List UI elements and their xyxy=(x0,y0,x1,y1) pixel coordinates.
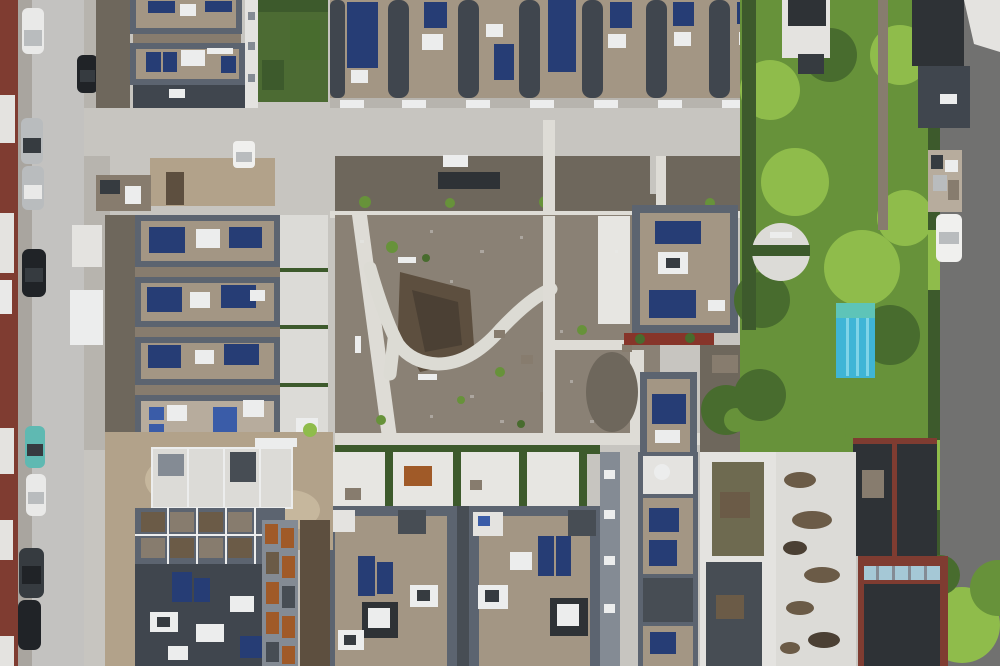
roof-gap xyxy=(133,34,241,43)
roof-gap xyxy=(135,385,280,395)
window-panel xyxy=(282,586,295,608)
dark-roof-strip xyxy=(646,0,667,98)
skylight xyxy=(708,300,725,311)
roof-gap xyxy=(135,327,280,337)
wood-panel xyxy=(265,524,278,544)
terrace-divider xyxy=(280,268,328,272)
dormer xyxy=(658,100,682,109)
hvac-fan xyxy=(666,258,680,268)
garden-path xyxy=(878,0,888,230)
tree xyxy=(761,148,829,216)
dark-roof-strip xyxy=(519,0,540,98)
junk xyxy=(948,180,959,200)
solar-array xyxy=(163,52,177,72)
pallet xyxy=(443,155,468,167)
roof-stain xyxy=(720,492,750,518)
roof-gap xyxy=(135,267,280,277)
junk xyxy=(945,160,958,172)
roof-stain xyxy=(804,567,840,583)
roof-terrace xyxy=(527,452,579,506)
shrub xyxy=(386,241,398,253)
roof-hatch xyxy=(608,34,626,48)
dormer xyxy=(340,100,364,109)
junk xyxy=(931,155,943,169)
car-windshield xyxy=(28,492,44,504)
roof-hatch xyxy=(181,50,205,66)
roof-stain xyxy=(786,601,814,615)
car-roof-rails xyxy=(22,566,41,584)
wood-panel xyxy=(282,556,295,578)
pool-cover xyxy=(836,303,875,318)
shrub xyxy=(359,196,371,208)
facade-white-segment xyxy=(0,636,14,666)
roof-hatch xyxy=(351,70,368,83)
solar-array xyxy=(556,536,571,576)
skylight-mullion xyxy=(892,566,895,580)
window-panel xyxy=(266,642,279,662)
terrace-hedge xyxy=(385,452,393,506)
solar-array xyxy=(148,1,175,13)
window xyxy=(248,42,255,50)
skylight xyxy=(243,400,264,417)
rowhouse-block xyxy=(330,0,792,122)
dark-roof-strip xyxy=(330,0,345,98)
corner-skylight xyxy=(568,510,596,536)
grid-cell xyxy=(199,512,223,532)
tree xyxy=(790,404,846,460)
walkway xyxy=(84,108,794,156)
paver xyxy=(521,355,533,364)
terrace-divider xyxy=(280,383,328,387)
car-roof xyxy=(24,185,42,199)
shrub-bed xyxy=(262,60,284,90)
yard-decking xyxy=(712,355,738,373)
solar-array xyxy=(221,56,236,73)
shrub xyxy=(445,198,455,208)
narrow-alley xyxy=(620,452,638,666)
cross-path xyxy=(543,120,555,216)
solar-array xyxy=(224,344,259,365)
construction-shed xyxy=(72,225,102,267)
junk-sheet xyxy=(125,186,141,204)
solar-array xyxy=(649,290,696,318)
garage-brick-edge xyxy=(892,438,897,556)
shed-annex xyxy=(798,54,824,74)
shrub xyxy=(577,325,587,335)
car-windshield xyxy=(24,30,42,46)
garage-clutter xyxy=(862,470,884,498)
outbuilding-roof xyxy=(912,0,964,66)
dark-roof-strip xyxy=(388,0,409,98)
roof-terrace xyxy=(461,452,519,506)
window xyxy=(604,556,615,565)
parked-car xyxy=(18,600,41,650)
solar-array xyxy=(655,221,701,244)
pool-lane-line xyxy=(866,318,869,376)
roof-hatch xyxy=(674,32,691,46)
shrub xyxy=(422,254,430,262)
solar-array xyxy=(649,508,679,532)
roof-vent xyxy=(940,94,957,104)
tree xyxy=(824,230,900,306)
terrace-hedge xyxy=(519,452,527,506)
solar-array xyxy=(649,540,677,566)
dark-roof-strip xyxy=(458,0,479,98)
terrace-hedge xyxy=(579,452,587,506)
solar-array xyxy=(194,578,210,602)
roof-stain xyxy=(783,541,807,555)
roof-stain xyxy=(784,472,816,488)
skylight-mullion xyxy=(924,566,927,580)
solar-panel xyxy=(149,407,164,420)
wood-panel xyxy=(266,582,279,604)
dormer xyxy=(466,100,490,109)
grid-cell xyxy=(141,512,165,532)
solar-array xyxy=(650,632,676,654)
window-panel xyxy=(266,552,279,574)
wood-panel xyxy=(266,612,279,634)
aerial-photo-canvas xyxy=(0,0,1000,666)
hvac-fan xyxy=(417,590,430,601)
wood-panel xyxy=(281,528,294,548)
solar-array xyxy=(240,636,262,658)
right-gardens xyxy=(734,0,938,460)
roof-vent-dome xyxy=(654,464,670,480)
shrub xyxy=(495,367,505,377)
dark-roof-strip xyxy=(709,0,730,98)
solar-array xyxy=(548,0,576,72)
roof-stain xyxy=(716,595,744,619)
dormer xyxy=(530,100,554,109)
planter-shrub xyxy=(685,333,695,343)
tank-bench xyxy=(770,232,792,238)
terrace-divider xyxy=(280,325,328,329)
skylight-mullion xyxy=(876,566,879,580)
southeast-buildings xyxy=(638,438,948,666)
terrace-unit xyxy=(470,480,482,490)
solar-array xyxy=(673,2,694,26)
shed-roof xyxy=(788,0,826,26)
shrub xyxy=(457,396,465,404)
top-left-buildings xyxy=(130,0,328,108)
construction-shed xyxy=(70,290,103,345)
grid-cell xyxy=(170,538,194,558)
cobblestone-spur xyxy=(390,340,394,374)
skylight xyxy=(196,229,220,248)
tower-glass-section xyxy=(643,578,693,622)
terrace-hedge xyxy=(453,452,461,506)
courtyard-path-branch xyxy=(555,340,631,350)
grid-cell xyxy=(228,538,252,558)
paver xyxy=(494,330,505,338)
window xyxy=(604,510,615,519)
verge-gravel-strip xyxy=(96,0,130,110)
shrub xyxy=(517,420,525,428)
hvac-unit xyxy=(655,430,680,443)
car-windshield xyxy=(27,444,43,456)
paver xyxy=(622,344,632,352)
car-windshield xyxy=(23,138,41,153)
solar-array xyxy=(347,2,378,68)
grid-cell xyxy=(199,538,223,558)
building-gap xyxy=(457,506,469,666)
wood-panel xyxy=(282,646,295,664)
wood-panel xyxy=(282,616,295,638)
window xyxy=(604,470,615,479)
bench xyxy=(355,336,361,353)
facade-white-segment xyxy=(0,428,14,474)
solar-array xyxy=(229,227,262,248)
window xyxy=(248,12,255,20)
grid-cell xyxy=(141,538,165,558)
window xyxy=(248,74,255,82)
roof-stain xyxy=(792,511,832,529)
grid-cell xyxy=(170,512,194,532)
roof-hatch xyxy=(486,24,503,37)
facade-white-segment xyxy=(0,213,14,273)
solar-array xyxy=(147,287,182,312)
hvac-unit xyxy=(510,552,532,570)
junk xyxy=(933,175,947,191)
solar-array xyxy=(377,562,393,594)
solar-array xyxy=(213,407,237,433)
brick-roof-slope xyxy=(133,85,245,108)
solar-array xyxy=(205,1,232,12)
light-terrace xyxy=(598,216,630,324)
crane-beam xyxy=(207,48,233,54)
digger-shrub xyxy=(303,423,317,437)
dormer xyxy=(594,100,618,109)
solar-array xyxy=(424,2,447,28)
facade-light-segment xyxy=(0,280,12,314)
terrace-furniture xyxy=(404,466,432,486)
roof-hatch xyxy=(190,292,210,308)
hedge-row xyxy=(258,0,328,12)
frame-glass-cell xyxy=(158,454,184,476)
solar-array xyxy=(148,345,181,368)
grid-cell xyxy=(228,512,252,532)
corner-skylight xyxy=(398,510,426,534)
hvac-unit xyxy=(196,624,224,642)
rooftop-object xyxy=(478,516,490,526)
van-windshield xyxy=(939,232,959,244)
truck-bed xyxy=(236,152,252,162)
solar-array xyxy=(358,556,375,596)
roof-hatch xyxy=(422,34,443,50)
pool-lane-line xyxy=(856,318,859,376)
hedge-row xyxy=(742,0,756,330)
hvac-fan xyxy=(485,590,499,602)
dark-pitched-roof xyxy=(864,584,940,666)
verge-soil-strip xyxy=(105,215,135,445)
pool-lane-line xyxy=(846,318,849,376)
skylight xyxy=(167,405,187,421)
skylight xyxy=(250,290,265,301)
kerb-stones xyxy=(255,438,297,447)
facade-white-segment xyxy=(0,95,15,143)
car-windshield xyxy=(25,268,43,282)
tree xyxy=(734,369,786,421)
dormer xyxy=(402,100,426,109)
west-apartment-rows xyxy=(135,215,328,445)
junk-tarp xyxy=(100,180,120,194)
hvac-fan xyxy=(344,635,356,645)
bench xyxy=(418,374,437,380)
construction-soil xyxy=(300,520,330,666)
window xyxy=(604,604,615,613)
frame-glass-cell xyxy=(230,452,256,482)
solar-array xyxy=(610,2,632,28)
skylight-band xyxy=(864,566,940,580)
storage-box xyxy=(166,172,184,205)
bench xyxy=(398,257,416,263)
tree xyxy=(826,114,878,166)
skylight-mullion xyxy=(908,566,911,580)
facade-white-segment xyxy=(0,520,13,560)
construction-strip xyxy=(105,550,135,666)
courtyard-path-vertical xyxy=(543,216,555,445)
solar-array xyxy=(149,227,185,253)
planter-shrub xyxy=(635,334,645,344)
terrace-unit xyxy=(345,488,361,500)
solar-array xyxy=(494,44,514,80)
solar-array xyxy=(146,52,161,72)
penthouse-skylight xyxy=(368,608,390,628)
aerial-photo xyxy=(0,0,1000,666)
hvac-fan xyxy=(157,617,170,627)
shrub-bed xyxy=(290,20,320,60)
shrub xyxy=(376,415,386,425)
hvac-unit xyxy=(230,596,254,612)
dark-roof-strip xyxy=(582,0,603,98)
penthouse-skylight xyxy=(557,604,579,626)
solar-array xyxy=(652,394,686,424)
hedge-over-tank xyxy=(752,245,810,256)
car-windshield xyxy=(80,70,95,82)
solar-array xyxy=(172,572,192,602)
pallet-stack xyxy=(438,172,500,189)
solar-array xyxy=(538,536,554,576)
roof-hatch xyxy=(180,4,196,16)
roof-stain xyxy=(780,642,800,654)
skylight xyxy=(169,89,185,98)
roof-hatch xyxy=(195,350,214,364)
skylight xyxy=(168,646,188,660)
roof-stain xyxy=(808,632,840,648)
